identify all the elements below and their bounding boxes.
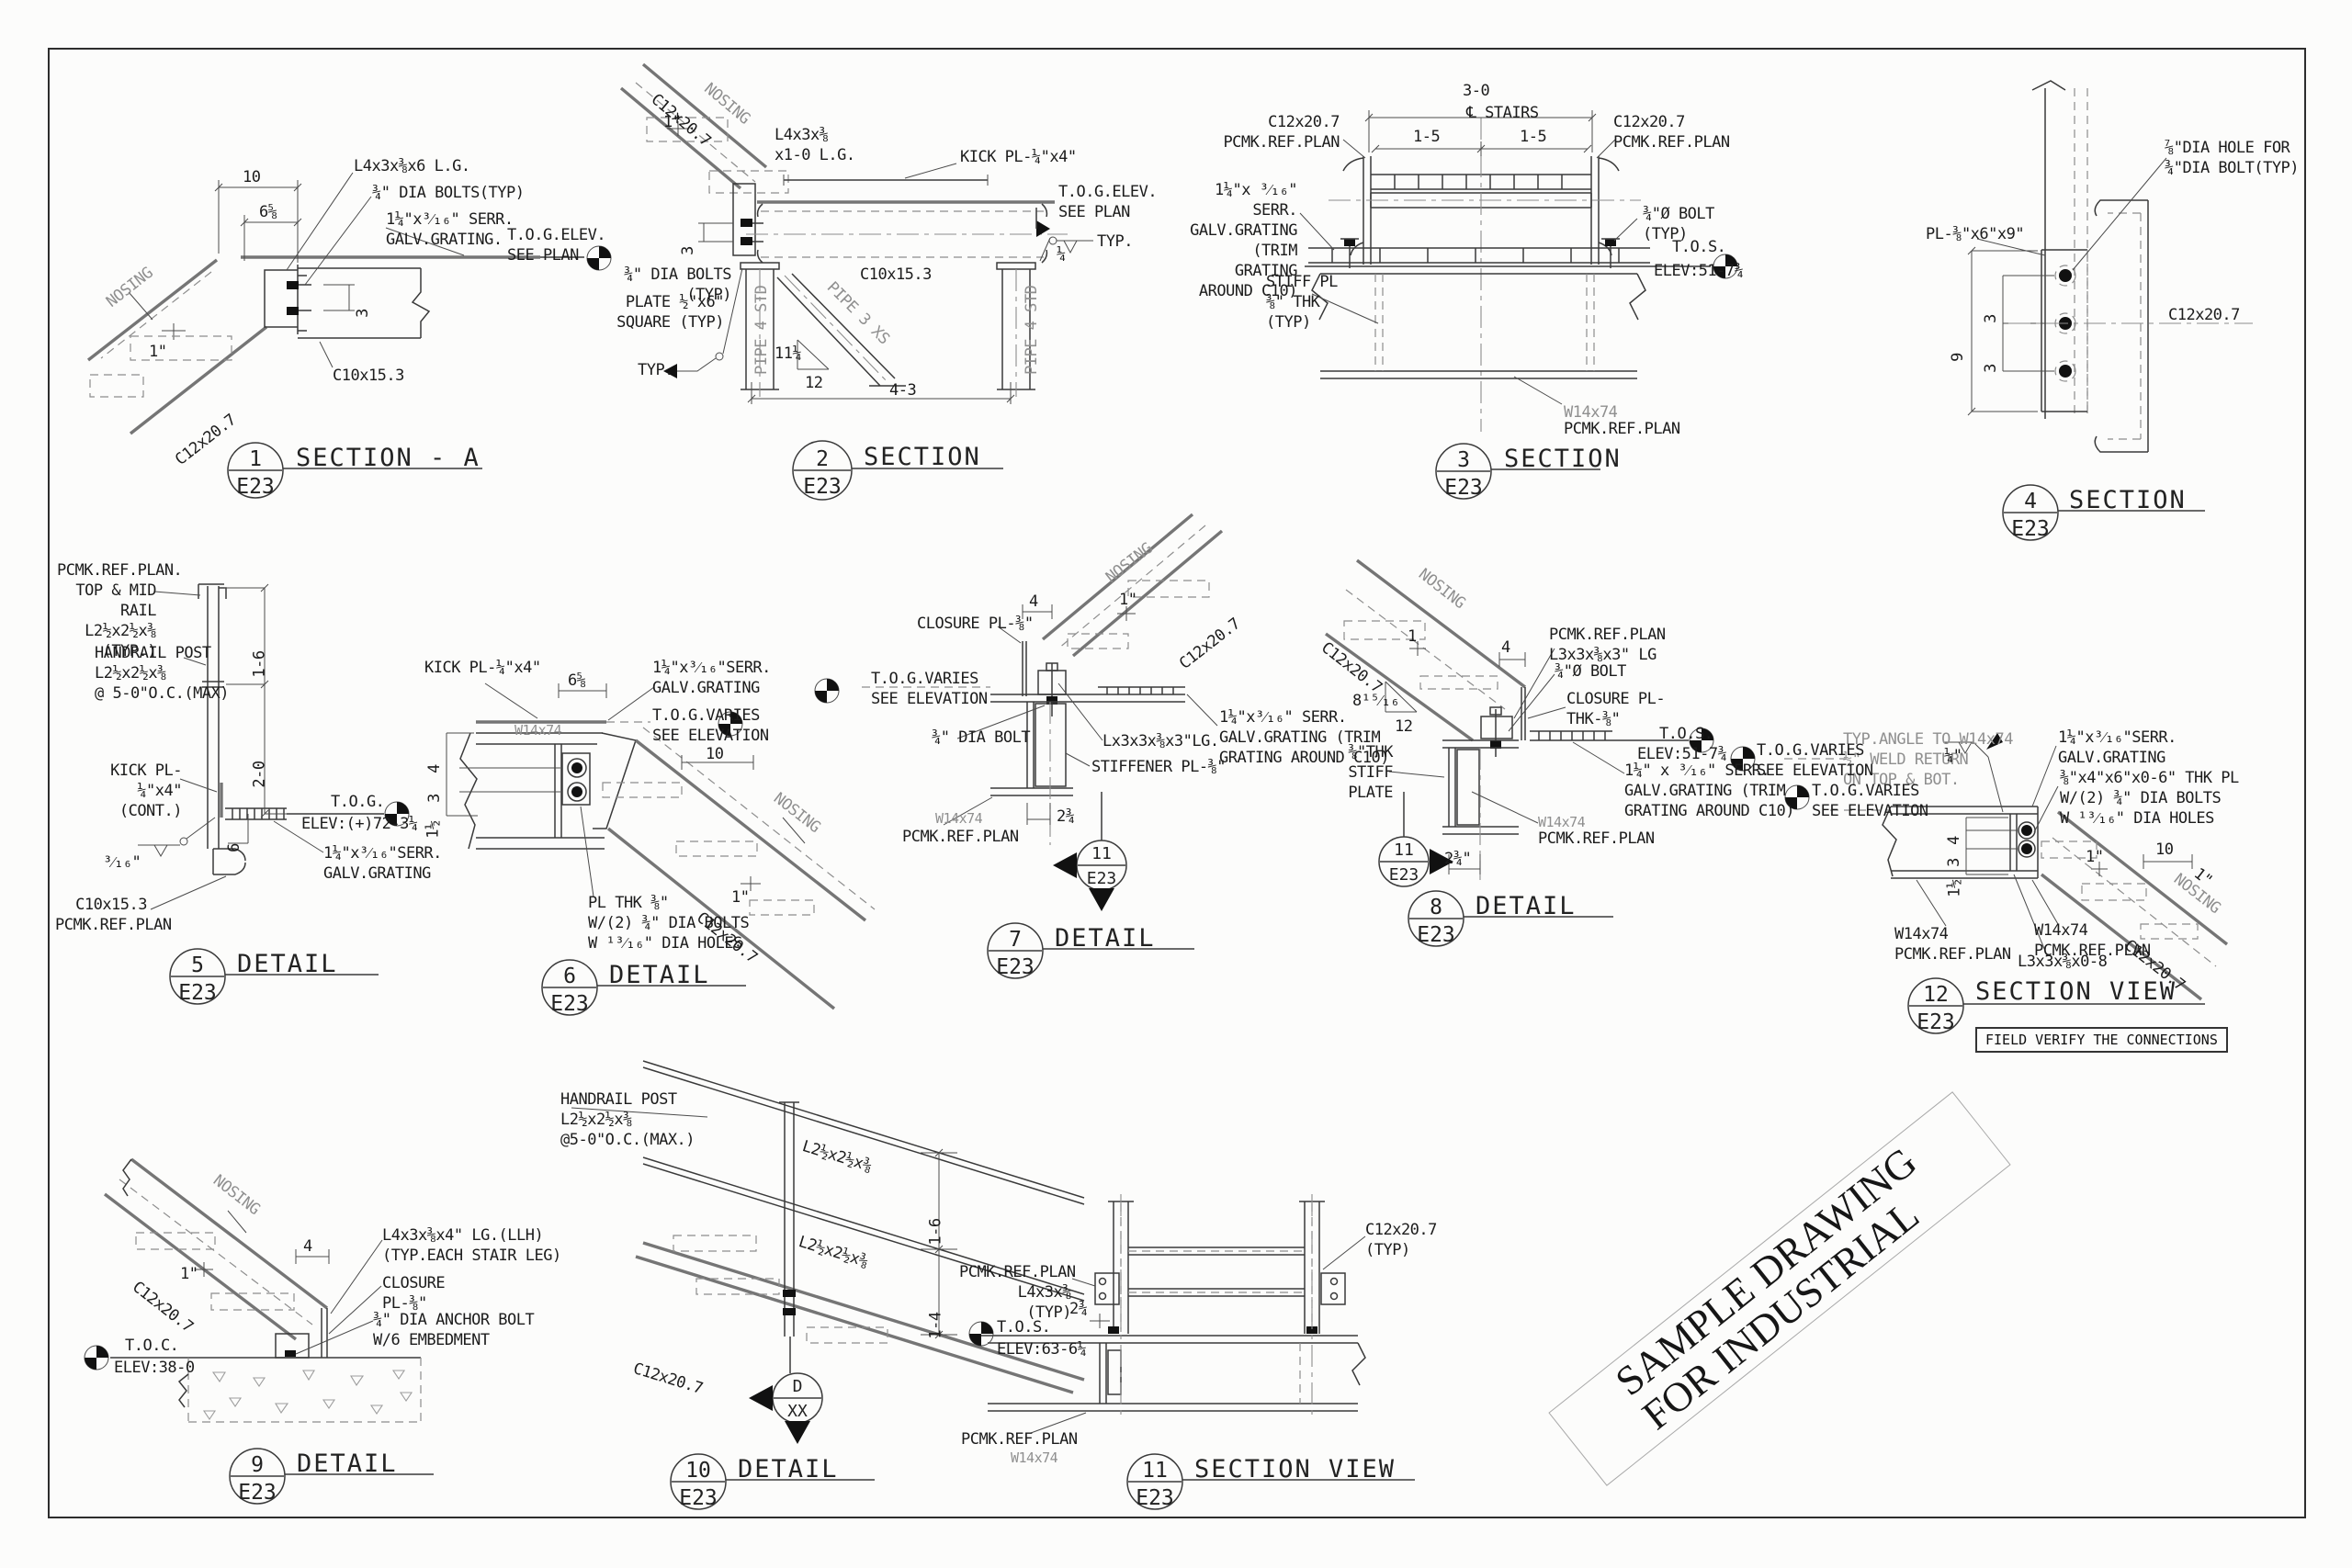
d4-title: SECTION [2069,486,2187,514]
d6-w14-label: W14x74 [514,722,561,740]
d9-angle-label: L4x3x⅜x4" LG.(LLH) (TYP.EACH STAIR LEG) [382,1225,561,1266]
d2-kick-label: KICK PL-¼"x4" [960,147,1077,167]
d1-bolts-label: ¾" DIA BOLTS(TYP) [372,183,525,203]
d1-angle-label: L4x3x⅜x6 L.G. [354,156,470,176]
d10-bubble-sheet: E23 [671,1486,726,1510]
d2-pipe-left-label: PIPE 4 STD [752,286,772,375]
d8-stiff-label: ⅜"THK STIFF PLATE [1314,742,1393,803]
d8-marker-sheet: E23 [1376,865,1431,885]
d2-dim-1: 1" [663,112,681,132]
d9-dim-1: 1" [180,1264,198,1284]
d3-c12-right-label: C12x20.7 PCMK.REF.PLAN [1613,112,1730,152]
d3-dim-3-0: 3-0 [1463,81,1489,101]
d9-bubble-sheet: E23 [230,1481,285,1505]
d9-dim-4: 4 [303,1236,312,1257]
d2-slope-rise: 11¼ [775,344,801,364]
d9-anchor-label: ¾" DIA ANCHOR BOLT W/6 EMBEDMENT [373,1310,534,1350]
d10-dim-1-4: 1-4 [926,1312,946,1338]
d7-tog-label: T.O.G.VARIES SEE ELEVATION [871,669,988,709]
d6-bubble-sheet: E23 [542,992,597,1016]
d11-elev-label: ELEV:63-6¼ [997,1339,1086,1359]
d8-title: DETAIL [1476,892,1577,920]
d12-note: FIELD VERIFY THE CONNECTIONS [1975,1027,2228,1053]
d12-bubble-number: 12 [1908,983,1963,1007]
d2-pipe-right-label: PIPE 4 STD [1022,286,1042,375]
d6-tog-label: T.O.G.VARIES SEE ELEVATION [652,705,769,746]
d11-dim-2-34: 2¾ [1069,1299,1087,1319]
d10-dim-1-6: 1-6 [926,1218,946,1245]
d5-grating-label: 1¼"x³⁄₁₆"SERR. GALV.GRATING [323,843,442,884]
d4-dim-3b: 3 [1981,364,2001,373]
d9-title: DETAIL [297,1450,398,1478]
d7-closure-label: CLOSURE PL-⅜" [917,614,1034,634]
d12-tog-a-label: T.O.G.VARIES SEE ELEVATION [1757,740,1873,781]
d4-bubble-number: 4 [2003,490,2058,513]
d5-weld-label: ³⁄₁₆" [103,852,141,873]
d1-dim-10: 10 [243,167,260,187]
d6-bubble-number: 6 [542,964,597,988]
d11-title: SECTION VIEW [1194,1455,1396,1483]
d8-dim-2-34: 2¾" [1444,849,1471,869]
d1-dim-6-58: 6⅝ [259,202,277,222]
d3-tos-label: T.O.S. [1672,237,1725,257]
d12-dim-1a: 1" [2086,847,2103,867]
d8-bubble-number: 8 [1408,896,1464,919]
d3-elev-label: ELEV:51-7¾ [1654,261,1743,281]
d1-tog-label: T.O.G.ELEV. SEE PLAN [507,225,605,265]
d11-bubble-sheet: E23 [1127,1486,1182,1510]
d2-tog-label: T.O.G.ELEV. SEE PLAN [1058,182,1157,222]
d5-dim-1-6: 1-6 [250,650,270,677]
d3-title: SECTION [1504,445,1622,473]
d4-c12-label: C12x20.7 [2168,305,2240,325]
d8-closure-label: CLOSURE PL- THK-⅜" [1566,689,1665,729]
d6-kick-label: KICK PL-¼"x4" [424,658,541,678]
d6-title: DETAIL [609,961,710,989]
d6-dim-4: 4 [424,764,445,773]
d2-weld-typ-right: TYP. [1097,231,1133,252]
d8-pcmk2-label: PCMK.REF.PLAN [1538,829,1655,849]
d8-marker-number: 11 [1376,840,1431,860]
d7-marker-sheet: E23 [1074,869,1129,888]
d11-tos-label: T.O.S. [997,1317,1050,1337]
d7-dim-4: 4 [1029,592,1038,612]
d10-title: DETAIL [738,1455,839,1483]
d5-title: DETAIL [237,950,338,978]
d11-pcmk-label: PCMK.REF.PLAN L4x3x⅜ (TYP) [959,1262,1071,1323]
d12-grating-label: 1¼"x³⁄₁₆"SERR. GALV.GRATING [2058,728,2177,768]
d9-elev-label: ELEV:38-0 [114,1358,195,1378]
d1-title: SECTION - A [296,444,481,472]
d3-pcmk-label: PCMK.REF.PLAN [1564,419,1680,439]
d2-angle-label: L4x3x⅜ x1-0 L.G. [775,125,855,165]
d1-dim-1: 1" [149,342,166,362]
d2-plate-label: PLATE ½"x6" SQUARE (TYP) [606,292,724,333]
d11-w14-label: W14x74 [1011,1450,1057,1468]
d3-bubble-number: 3 [1436,448,1491,472]
d5-dim-2-0: 2-0 [250,761,270,787]
d5-tog-label: T.O.G. [331,792,384,812]
d12-weld-label: ¼" [1944,746,1962,766]
d7-dim-1: 1" [1119,590,1136,610]
d3-c12-left-label: C12x20.7 PCMK.REF.PLAN [1222,112,1340,152]
d1-bubble-number: 1 [228,447,283,471]
d12-tog-b-label: T.O.G.VARIES SEE ELEVATION [1812,781,1928,821]
d5-bubble-sheet: E23 [170,981,225,1005]
d9-bubble-number: 9 [230,1453,285,1477]
d6-grating-label: 1¼"x³⁄₁₆"SERR. GALV.GRATING [652,658,771,698]
d1-c10-label: C10x15.3 [333,366,404,386]
d10-marker-sheet: XX [770,1402,825,1421]
d12-title: SECTION VIEW [1975,977,2177,1006]
d7-angle-label: Lx3x3x⅜x3"LG. [1102,731,1219,751]
d4-bubble-sheet: E23 [2003,517,2058,541]
d7-dim-2-34: 2¾ [1057,807,1074,827]
d10-bubble-number: 10 [671,1459,726,1483]
d8-pcmk-label: PCMK.REF.PLAN L3x3x⅜x3" LG [1549,625,1666,665]
d2-bubble-number: 2 [795,447,850,471]
d2-dim-3: 3 [678,246,698,255]
d3-cl-stairs: ℄ STAIRS [1466,103,1539,123]
d3-dim-1-5b: 1-5 [1520,127,1546,147]
d7-bubble-number: 7 [988,928,1043,952]
d12-w14-left-label: W14x74 PCMK.REF.PLAN [1894,924,2011,964]
d7-title: DETAIL [1055,924,1156,953]
d12-dim-1-12: 1½ [1945,879,1965,897]
d8-dim-4: 4 [1501,637,1510,658]
d10-post-label: HANDRAIL POST L2½x2½x⅜ @5-0"O.C.(MAX.) [560,1089,695,1150]
d7-stiffener-label: STIFFENER PL-⅜" [1091,757,1226,777]
d11-pcmk2-label: PCMK.REF.PLAN [961,1429,1078,1450]
d2-bubble-sheet: E23 [795,475,850,499]
d6-dim-1-12: 1½ [424,820,444,838]
d7-marker-number: 11 [1074,844,1129,863]
d2-weld-size: ¼ [1057,244,1066,265]
d5-post-label: HANDRAIL POST L2½x2½x⅜ @ 5-0"O.C.(MAX) [95,643,229,704]
d3-dim-1-5a: 1-5 [1413,127,1440,147]
detail-3-linework [1300,110,1737,499]
d4-pl-label: PL-⅜"x6"x9" [1926,224,2024,244]
d9-toc-label: T.O.C. [125,1336,178,1356]
d10-marker-number: D [770,1377,825,1396]
d11-c12-label: C12x20.7 (TYP) [1365,1220,1437,1260]
d6-dim-10: 10 [706,744,723,764]
d7-w14-label: W14x74 [935,810,982,829]
d7-pcmk-label: PCMK.REF.PLAN [902,827,1019,847]
d12-l3-label: L3x3x⅜x0-8 [2018,952,2107,972]
d8-tos-label: T.O.S. [1659,724,1713,744]
d8-slope-run: 12 [1395,716,1412,737]
d12-dim-10: 10 [2155,840,2173,860]
d4-dim-9: 9 [1948,353,1968,362]
d2-dim-4-3: 4-3 [889,380,916,400]
d7-bolt-label: ¾" DIA BOLT [932,728,1030,748]
d11-bubble-number: 11 [1127,1459,1182,1483]
d5-c10-label: C10x15.3 PCMK.REF.PLAN [55,895,147,935]
d9-closure-label: CLOSURE PL-⅜" [382,1273,445,1314]
d2-c10-label: C10x15.3 [860,265,932,285]
d8-bolt-label: ¾"Ø BOLT [1555,661,1626,682]
d1-grating-label: 1¼"x³⁄₁₆" SERR. GALV.GRATING. [386,209,514,250]
d4-hole-label: ⅞"DIA HOLE FOR ¾"DIA BOLT(TYP) [2165,138,2299,178]
d6-dim-6-58: 6⅝ [568,671,585,691]
d3-stiff-label: STIFF PL ⅜" THK (TYP) [1266,272,1338,333]
d8-bubble-sheet: E23 [1408,923,1464,947]
d8-dim-1: 1 [1408,626,1417,647]
d2-slope-run: 12 [805,373,822,393]
d2-weld-typ: TYP. [638,360,673,380]
d4-dim-3a: 3 [1981,314,2001,323]
d5-elev-label: ELEV:(+)72-3¼ [301,814,418,834]
d5-dim-6: 6 [224,843,244,852]
d5-bubble-number: 5 [170,953,225,977]
d12-pl-label: ⅜"x4"x6"x0-6" THK PL W/(2) ¾" DIA BOLTS … [2060,768,2239,829]
d8-slope-rise: 8¹⁵⁄₁₆ [1352,691,1399,711]
d1-bubble-sheet: E23 [228,475,283,499]
d12-dim-3: 3 [1944,858,1964,867]
d2-title: SECTION [864,443,981,471]
d7-bubble-sheet: E23 [988,955,1043,979]
d12-bubble-sheet: E23 [1908,1010,1963,1034]
d6-dim-3: 3 [424,794,445,803]
d12-dim-4: 4 [1944,836,1964,845]
d5-kick-label: KICK PL- ¼"x4"(CONT.) [110,761,182,821]
d1-dim-3: 3 [353,309,373,318]
d3-bubble-sheet: E23 [1436,476,1491,500]
drawing-sheet: L4x3x⅜x6 L.G. ¾" DIA BOLTS(TYP) 1¼"x³⁄₁₆… [0,0,2352,1568]
